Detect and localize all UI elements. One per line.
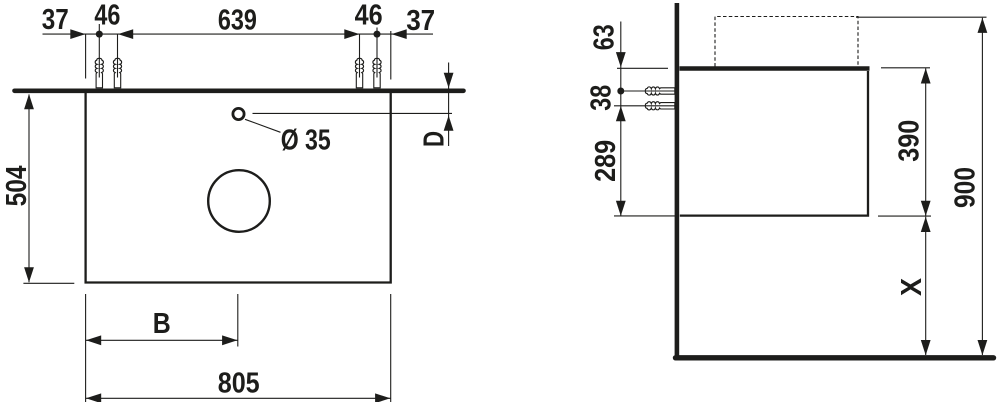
svg-text:X: X [896, 277, 928, 296]
svg-text:504: 504 [1, 165, 33, 206]
svg-text:D: D [419, 131, 451, 147]
svg-text:805: 805 [218, 368, 260, 400]
svg-text:46: 46 [94, 0, 120, 31]
svg-text:37: 37 [42, 4, 69, 36]
svg-text:46: 46 [355, 0, 383, 31]
svg-text:Ø 35: Ø 35 [281, 125, 331, 157]
svg-text:38: 38 [586, 85, 618, 111]
svg-text:289: 289 [590, 140, 622, 182]
svg-text:639: 639 [218, 5, 257, 37]
svg-text:390: 390 [894, 120, 926, 162]
svg-text:900: 900 [949, 167, 981, 208]
svg-text:63: 63 [588, 24, 620, 50]
svg-text:B: B [153, 308, 171, 340]
svg-text:37: 37 [406, 5, 435, 37]
